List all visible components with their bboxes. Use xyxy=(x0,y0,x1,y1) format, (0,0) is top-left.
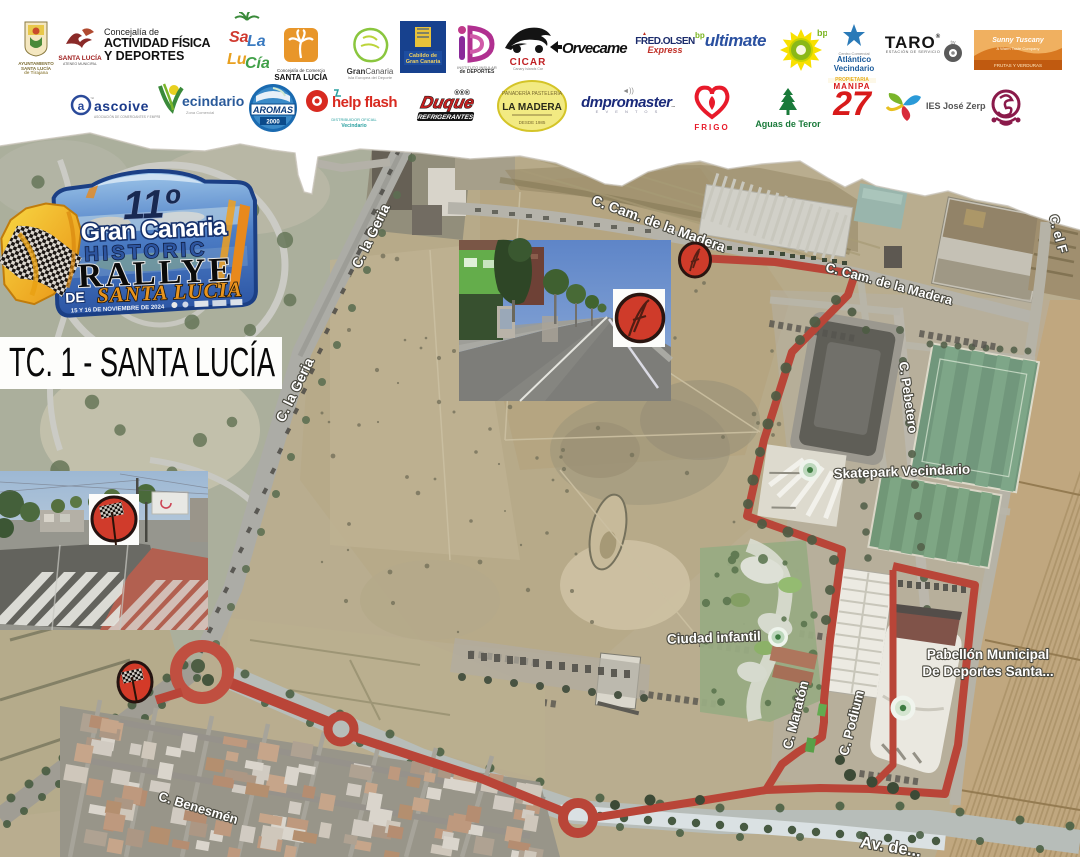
svg-text:La: La xyxy=(247,33,266,50)
svg-text:DE: DE xyxy=(65,289,85,306)
svg-text:™: ™ xyxy=(90,96,94,101)
svg-text:ascoive: ascoive xyxy=(94,98,149,114)
svg-text:A Warm Taste Company: A Warm Taste Company xyxy=(997,46,1040,51)
svg-text:Lu: Lu xyxy=(227,51,247,68)
svg-text:help flash: help flash xyxy=(332,94,397,111)
svg-text:IES José Zerpa: IES José Zerpa xyxy=(926,101,986,111)
svg-text:TC. 1 - SANTA LUCÍA: TC. 1 - SANTA LUCÍA xyxy=(9,339,275,385)
svg-text:2000: 2000 xyxy=(266,120,280,126)
svg-text:REFRIGERANTES: REFRIGERANTES xyxy=(417,114,475,121)
svg-text:Gran Canaria: Gran Canaria xyxy=(406,59,441,65)
svg-text:ASOCIACIÓN DE COMERCIANTES Y E: ASOCIACIÓN DE COMERCIANTES Y EMPRESARIOS xyxy=(94,114,160,119)
svg-text:DESDE 1985: DESDE 1985 xyxy=(519,120,546,125)
svg-text:Sa: Sa xyxy=(229,29,249,46)
svg-text:Pabellón Municipal: Pabellón Municipal xyxy=(927,647,1049,662)
svg-text:Duque: Duque xyxy=(419,92,477,112)
svg-text:PANADERÍA PASTELERÍA: PANADERÍA PASTELERÍA xyxy=(502,90,563,97)
svg-text:Zona Comercial: Zona Comercial xyxy=(186,110,214,115)
svg-text:ecindario: ecindario xyxy=(182,93,244,109)
svg-text:Orvecame: Orvecame xyxy=(562,40,627,57)
svg-text:De Deportes Santa...: De Deportes Santa... xyxy=(922,664,1053,679)
svg-text:LA MADERA: LA MADERA xyxy=(502,102,562,113)
svg-text:FRUTAS Y VERDURAS: FRUTAS Y VERDURAS xyxy=(994,63,1042,68)
svg-text:AROMAS: AROMAS xyxy=(252,105,293,115)
svg-text:Sunny Tuscany: Sunny Tuscany xyxy=(992,37,1045,44)
svg-text:a: a xyxy=(78,99,85,113)
